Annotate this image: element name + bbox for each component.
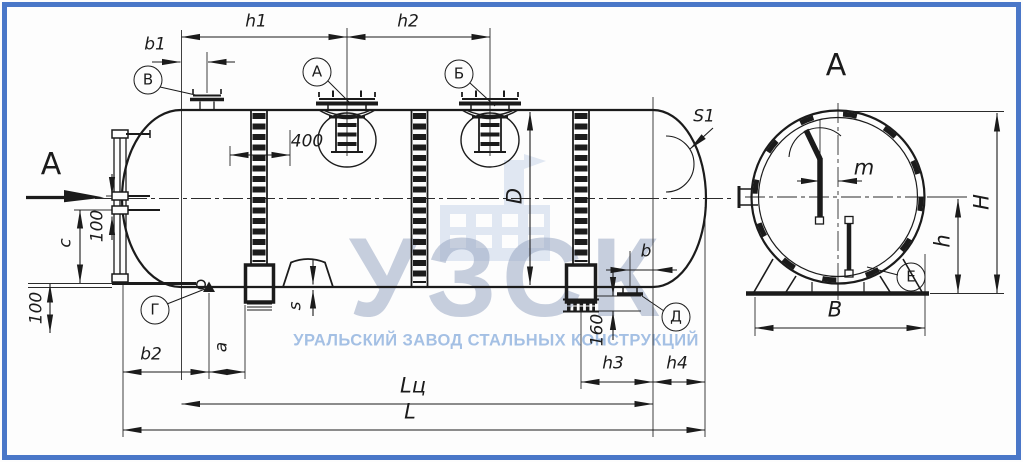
dim-label-H: H	[972, 194, 993, 210]
dim-label-s: s	[288, 302, 305, 311]
balloon-manhole-B: Б	[445, 60, 474, 89]
dim-label-400: 400	[291, 134, 323, 151]
dim-label-c: c	[58, 238, 75, 247]
dim-label-h2: h2	[397, 14, 419, 31]
dim-label-L-total: L	[404, 402, 416, 423]
section-view-title: А	[826, 51, 847, 81]
dim-label-h4: h4	[666, 356, 688, 373]
dim-label-m: m	[854, 158, 874, 179]
section-cut-letter: А	[41, 150, 62, 180]
balloon-nozzle-D: Д	[662, 303, 691, 332]
dim-label-100-gauge: 100	[90, 210, 107, 242]
dim-label-h1: h1	[245, 14, 267, 31]
balloon-manhole-A: А	[303, 58, 332, 87]
dim-label-h3: h3	[602, 356, 624, 373]
dim-label-h-axis: h	[933, 234, 954, 247]
dim-label-a: a	[214, 342, 231, 352]
balloon-drain-G: Г	[141, 296, 170, 325]
dim-label-L-cyl: Lц	[400, 376, 426, 397]
dim-label-B-width: В	[828, 300, 842, 321]
dim-label-100-bottom: 100	[29, 292, 46, 324]
dim-label-s1: S1	[693, 109, 715, 126]
balloon-support-E: Е	[897, 263, 926, 292]
dim-label-b: b	[641, 244, 652, 261]
balloon-nozzle-V: В	[134, 66, 163, 95]
dim-label-b2: b2	[140, 347, 162, 364]
dim-label-D: D	[505, 188, 526, 204]
dim-label-b1: b1	[144, 37, 166, 54]
drawing-canvas: УЗСК УРАЛЬСКИЙ ЗАВОД СТАЛЬНЫХ КОНСТРУКЦИ…	[0, 0, 1023, 462]
dim-label-160: 160	[590, 314, 607, 346]
